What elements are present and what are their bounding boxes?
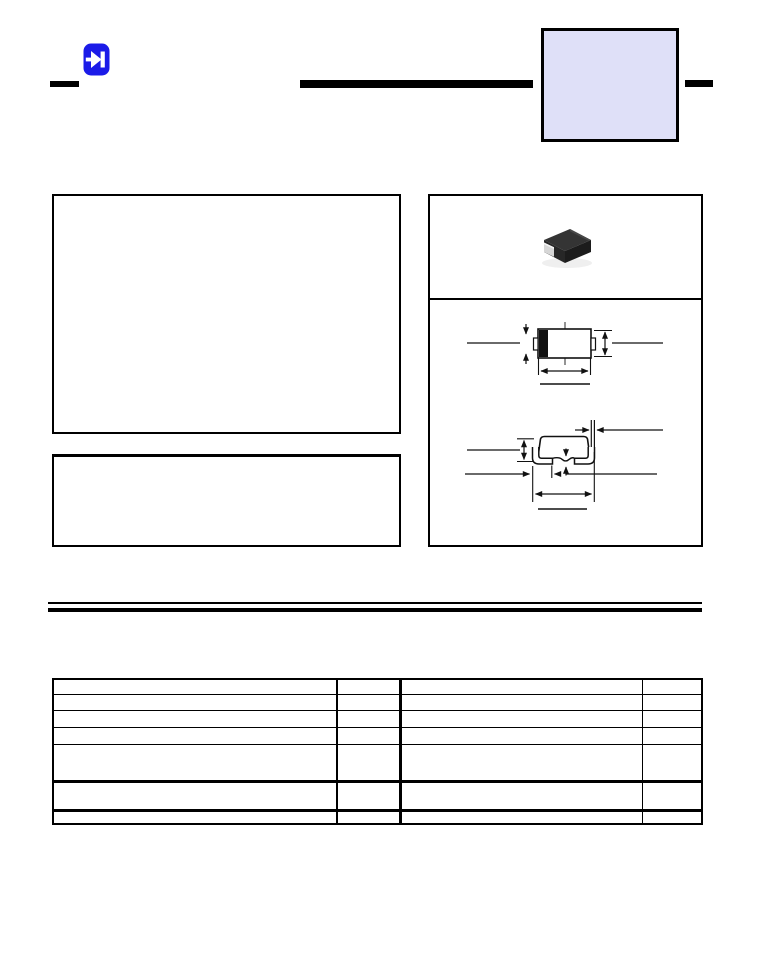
table-cell (402, 680, 643, 695)
smd-package-photo (534, 223, 598, 271)
table-cell (338, 783, 402, 812)
table-cell (338, 711, 402, 728)
table-cell (54, 783, 338, 812)
table-cell (54, 745, 338, 783)
header-right-tick (685, 80, 713, 87)
table-cell (402, 728, 643, 745)
package-top-view (467, 322, 663, 384)
section-double-rule-thick (48, 608, 702, 612)
table-cell (54, 728, 338, 745)
table-cell (402, 711, 643, 728)
table-cell (338, 695, 402, 711)
cathode-band (539, 330, 548, 357)
header-left-tick (50, 81, 79, 87)
package-side-view (465, 420, 663, 509)
table-cell (54, 812, 338, 823)
package-photo-section (430, 196, 701, 300)
table-cell (338, 728, 402, 745)
table-cell (643, 695, 701, 711)
table-cell (338, 812, 402, 823)
table-cell (643, 783, 701, 812)
table-cell (643, 711, 701, 728)
table-cell (402, 812, 643, 823)
ratings-table (52, 678, 703, 825)
notes-box (52, 454, 401, 547)
table-cell (402, 695, 643, 711)
table-cell (54, 695, 338, 711)
table-cell (402, 783, 643, 812)
table-cell (643, 680, 701, 695)
table-cell (643, 812, 701, 823)
table-cell (643, 745, 701, 783)
part-number-box (541, 28, 679, 142)
features-box (52, 194, 401, 434)
diode-icon (83, 43, 110, 76)
table-cell (643, 728, 701, 745)
package-panel (428, 194, 703, 547)
datasheet-page: { "page": { "background_color": "#ffffff… (0, 0, 770, 974)
package-drawings-section (430, 300, 701, 545)
package-dimension-drawings (428, 300, 703, 545)
section-double-rule-thin (48, 602, 702, 604)
title-underline-bar (300, 80, 533, 88)
table-cell (54, 680, 338, 695)
table-cell (402, 745, 643, 783)
table-cell (338, 745, 402, 783)
table-cell (338, 680, 402, 695)
table-cell (54, 711, 338, 728)
brand-logo (83, 43, 110, 76)
